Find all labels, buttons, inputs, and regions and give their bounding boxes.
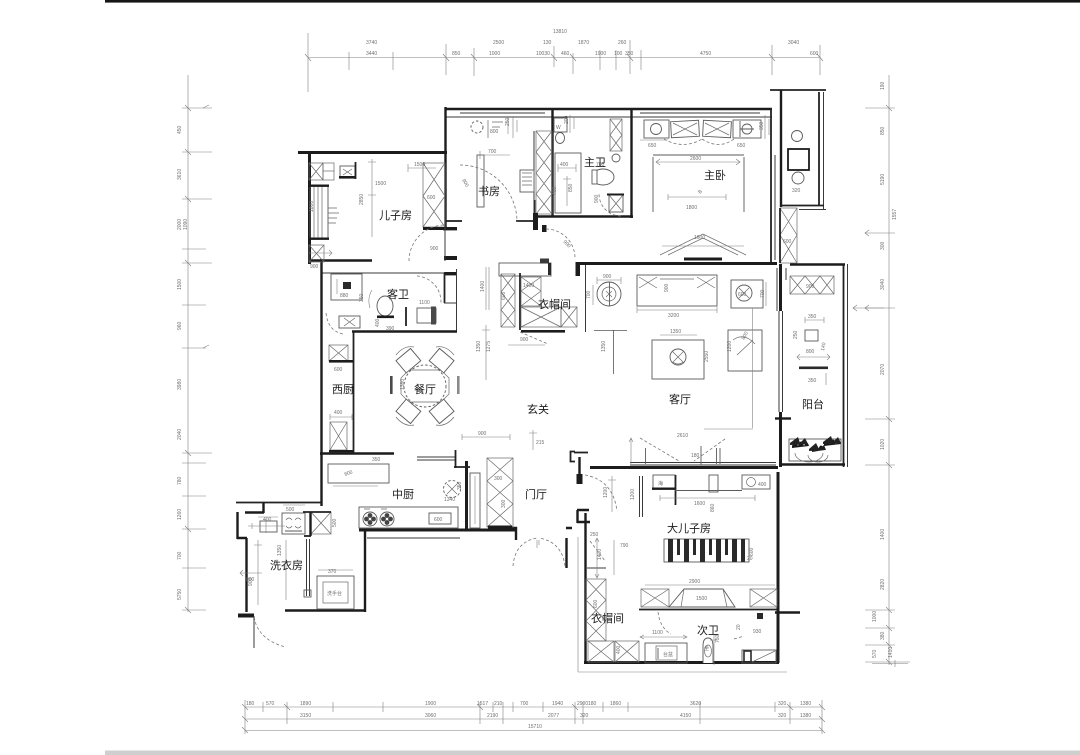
svg-text:1100: 1100 [419, 300, 430, 306]
svg-text:1260: 1260 [177, 509, 183, 520]
svg-text:1380: 1380 [800, 701, 811, 707]
svg-text:300: 300 [501, 499, 507, 508]
svg-text:2500: 2500 [493, 40, 504, 46]
svg-text:洗衣房: 洗衣房 [270, 558, 303, 572]
svg-text:300: 300 [494, 476, 503, 482]
svg-text:1500: 1500 [696, 596, 707, 602]
svg-text:800: 800 [490, 129, 499, 135]
svg-text:3440: 3440 [366, 51, 377, 57]
svg-text:2550: 2550 [704, 351, 710, 362]
svg-text:门厅: 门厅 [525, 487, 547, 501]
svg-text:400: 400 [758, 482, 767, 488]
svg-text:800: 800 [806, 349, 815, 355]
svg-text:350: 350 [759, 121, 765, 130]
svg-text:850: 850 [880, 126, 886, 135]
svg-text:100: 100 [614, 51, 623, 57]
svg-text:1350: 1350 [277, 545, 283, 556]
svg-text:1600: 1600 [694, 501, 705, 507]
svg-text:3980: 3980 [177, 379, 183, 390]
svg-text:1400: 1400 [480, 281, 486, 292]
svg-text:250: 250 [505, 117, 511, 126]
svg-text:2040: 2040 [177, 429, 183, 440]
svg-text:10030: 10030 [536, 51, 550, 57]
svg-text:930: 930 [753, 629, 762, 635]
svg-text:350: 350 [625, 51, 634, 57]
svg-text:1870: 1870 [578, 40, 589, 46]
svg-text:主卫: 主卫 [584, 156, 606, 169]
svg-text:2820: 2820 [880, 579, 886, 590]
svg-text:1275: 1275 [486, 341, 492, 352]
svg-text:600: 600 [434, 517, 443, 523]
svg-text:1100: 1100 [652, 630, 663, 636]
svg-text:860: 860 [710, 503, 716, 512]
svg-text:书房: 书房 [478, 185, 500, 198]
svg-text:3040: 3040 [880, 279, 886, 290]
svg-text:190: 190 [880, 81, 886, 90]
svg-text:260: 260 [618, 40, 627, 46]
svg-text:215: 215 [536, 440, 545, 446]
svg-text:600: 600 [501, 291, 507, 300]
svg-text:1900: 1900 [425, 701, 436, 707]
svg-text:1400: 1400 [880, 529, 886, 540]
svg-text:320: 320 [792, 188, 801, 194]
svg-text:700: 700 [177, 551, 183, 560]
svg-text:250: 250 [793, 330, 799, 339]
svg-text:350: 350 [457, 481, 463, 490]
svg-text:W: W [556, 125, 561, 131]
svg-text:1090: 1090 [183, 219, 189, 230]
svg-text:1000: 1000 [872, 611, 878, 622]
svg-text:1380: 1380 [800, 713, 811, 719]
svg-text:320: 320 [778, 701, 787, 707]
svg-text:1557: 1557 [892, 209, 898, 220]
svg-text:台盆: 台盆 [663, 651, 673, 658]
svg-text:2077: 2077 [548, 713, 559, 719]
svg-text:主卧: 主卧 [704, 169, 726, 182]
svg-text:3150: 3150 [300, 713, 311, 719]
svg-text:西厨: 西厨 [332, 383, 354, 396]
svg-text:600: 600 [334, 367, 343, 373]
svg-text:1410: 1410 [888, 647, 894, 658]
svg-text:儿子房: 儿子房 [379, 209, 412, 222]
svg-text:1900: 1900 [595, 51, 606, 57]
svg-text:5750: 5750 [177, 589, 183, 600]
svg-text:400: 400 [616, 645, 622, 654]
svg-text:400: 400 [560, 162, 569, 168]
svg-text:大儿子房: 大儿子房 [667, 521, 711, 535]
svg-text:坐: 坐 [704, 645, 709, 652]
svg-text:4150: 4150 [680, 713, 691, 719]
svg-text:390: 390 [386, 326, 395, 332]
svg-text:700: 700 [586, 290, 592, 299]
svg-text:1350: 1350 [476, 341, 482, 352]
svg-text:20: 20 [736, 624, 742, 630]
svg-text:2600: 2600 [690, 156, 701, 162]
svg-text:2900: 2900 [577, 701, 588, 707]
svg-text:180: 180 [691, 453, 700, 459]
svg-text:1890: 1890 [300, 701, 311, 707]
svg-text:200: 200 [564, 115, 570, 124]
svg-text:1350: 1350 [670, 329, 681, 335]
svg-text:海: 海 [658, 480, 663, 487]
svg-text:5190: 5190 [880, 174, 886, 185]
svg-text:600: 600 [783, 239, 792, 245]
svg-text:3610: 3610 [177, 169, 183, 180]
svg-text:880: 880 [340, 293, 349, 299]
svg-text:1000: 1000 [489, 51, 500, 57]
svg-text:570: 570 [872, 649, 878, 658]
svg-text:2070: 2070 [880, 364, 886, 375]
svg-text:400: 400 [334, 410, 343, 416]
svg-text:1800: 1800 [686, 205, 697, 211]
svg-text:1020: 1020 [880, 439, 886, 450]
svg-text:1940: 1940 [552, 701, 563, 707]
svg-text:13810: 13810 [553, 29, 567, 35]
svg-text:1340: 1340 [444, 497, 455, 503]
svg-text:850: 850 [568, 183, 574, 192]
svg-text:500: 500 [332, 518, 338, 527]
svg-text:960: 960 [177, 321, 183, 330]
svg-text:3740: 3740 [366, 40, 377, 46]
svg-text:1200: 1200 [603, 487, 609, 498]
svg-text:3040: 3040 [788, 40, 799, 46]
svg-text:900: 900 [664, 283, 670, 292]
svg-text:1500: 1500 [375, 181, 386, 187]
svg-text:2190: 2190 [487, 713, 498, 719]
svg-text:790: 790 [620, 543, 629, 549]
svg-text:350: 350 [808, 378, 817, 384]
svg-text:客厅: 客厅 [669, 392, 691, 406]
svg-text:1500: 1500 [177, 279, 183, 290]
svg-text:180: 180 [588, 701, 597, 707]
svg-text:320: 320 [778, 713, 787, 719]
svg-text:800: 800 [246, 577, 255, 583]
svg-text:570: 570 [266, 701, 275, 707]
svg-text:1500: 1500 [414, 162, 425, 168]
svg-text:130: 130 [543, 40, 552, 46]
svg-text:210: 210 [494, 701, 503, 707]
svg-text:460: 460 [561, 51, 570, 57]
svg-text:350: 350 [808, 314, 817, 320]
svg-text:1600: 1600 [694, 235, 705, 241]
svg-text:阳台: 阳台 [802, 397, 824, 411]
svg-text:400: 400 [263, 517, 272, 523]
svg-text:900: 900 [310, 264, 319, 270]
svg-text:400: 400 [375, 318, 381, 327]
svg-text:1200: 1200 [630, 489, 636, 500]
svg-text:3060: 3060 [425, 713, 436, 719]
svg-text:380: 380 [880, 631, 886, 640]
svg-text:400: 400 [552, 186, 558, 195]
svg-text:洗手台: 洗手台 [327, 590, 342, 597]
svg-text:2850: 2850 [359, 194, 365, 205]
svg-text:450: 450 [177, 125, 183, 134]
svg-text:350: 350 [359, 293, 365, 302]
svg-text:700: 700 [760, 289, 766, 298]
svg-text:700: 700 [520, 701, 529, 707]
svg-text:850: 850 [452, 51, 461, 57]
svg-text:900: 900 [478, 431, 487, 437]
svg-text:15710: 15710 [528, 724, 542, 730]
svg-text:600: 600 [810, 51, 819, 57]
svg-text:180: 180 [246, 701, 255, 707]
svg-text:500: 500 [286, 507, 295, 513]
svg-text:700: 700 [488, 149, 497, 155]
svg-text:中厨: 中厨 [392, 488, 414, 501]
svg-text:900: 900 [806, 284, 815, 290]
svg-text:600: 600 [738, 292, 747, 298]
svg-text:3200: 3200 [668, 313, 679, 319]
svg-text:衣帽间: 衣帽间 [591, 611, 624, 625]
svg-text:1400: 1400 [597, 549, 603, 560]
svg-text:次卫: 次卫 [697, 623, 719, 637]
svg-text:650: 650 [648, 143, 657, 149]
svg-text:4750: 4750 [700, 51, 711, 57]
svg-text:320: 320 [580, 713, 589, 719]
svg-text:1350: 1350 [601, 341, 607, 352]
svg-text:1800: 1800 [309, 201, 315, 212]
svg-text:300: 300 [880, 241, 886, 250]
svg-text:2900: 2900 [689, 579, 700, 585]
svg-text:1400: 1400 [523, 283, 534, 289]
svg-text:20: 20 [747, 556, 753, 562]
svg-text:餐厅: 餐厅 [414, 382, 436, 396]
svg-text:玄关: 玄关 [527, 402, 549, 416]
svg-text:600: 600 [427, 195, 436, 201]
svg-text:600: 600 [593, 599, 599, 608]
svg-text:1200: 1200 [727, 341, 733, 352]
svg-text:900: 900 [520, 337, 529, 343]
svg-text:衣帽间: 衣帽间 [538, 297, 571, 311]
svg-text:600: 600 [749, 547, 755, 556]
svg-text:780: 780 [177, 476, 183, 485]
svg-text:250: 250 [590, 532, 599, 538]
svg-text:900: 900 [603, 274, 612, 280]
svg-text:350: 350 [372, 457, 381, 463]
svg-text:客卫: 客卫 [387, 287, 409, 301]
svg-text:2610: 2610 [677, 433, 688, 439]
svg-text:1380: 1380 [400, 379, 406, 390]
svg-text:3620: 3620 [690, 701, 701, 707]
svg-text:1860: 1860 [610, 701, 621, 707]
svg-text:1517: 1517 [477, 701, 488, 707]
svg-text:900: 900 [430, 246, 439, 252]
svg-text:650: 650 [737, 143, 746, 149]
